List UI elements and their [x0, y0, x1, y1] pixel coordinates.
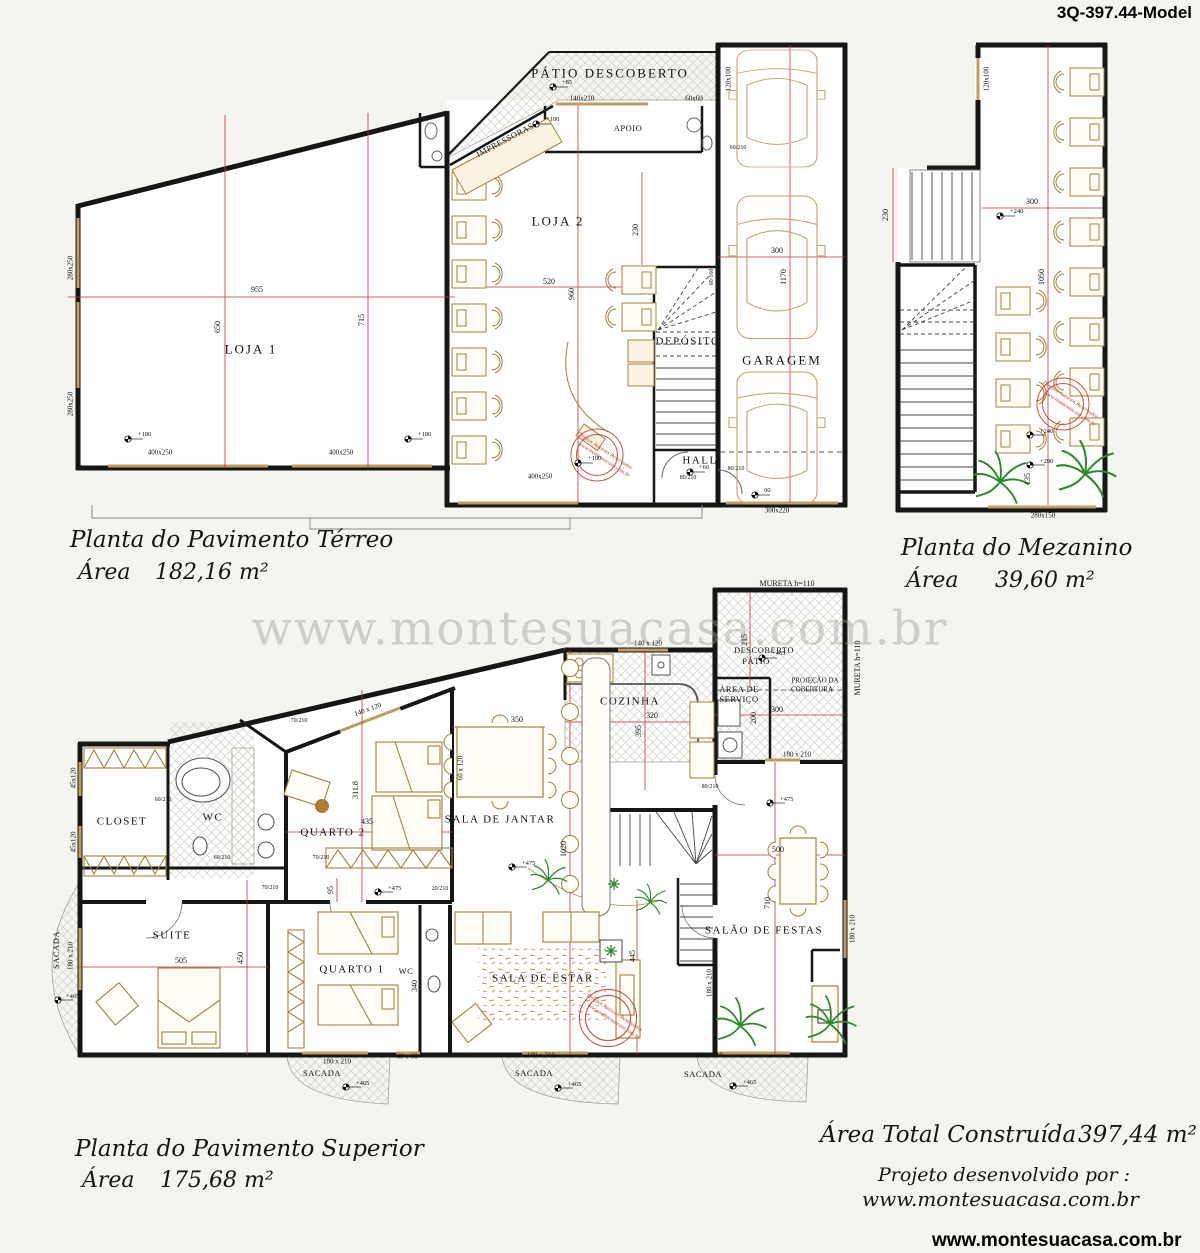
- door-180x210-patio: 180 x 210: [783, 752, 811, 759]
- dim-500: 500: [772, 846, 784, 854]
- level-00: 00: [764, 488, 771, 495]
- level-475-c: +475: [780, 797, 793, 804]
- win-280x250-b: 280x250: [68, 392, 75, 417]
- door-140x210: 140x210: [570, 96, 595, 103]
- room-label-salao: SALÃO DE FESTAS: [705, 926, 823, 937]
- room-label-cozinha: COZINHA: [600, 697, 660, 708]
- caption-credits-1: Projeto desenvolvido por :: [878, 1164, 1130, 1186]
- caption-mez-area-value: 39,60 m²: [995, 568, 1095, 593]
- caption-total-value: 397,44 m²: [1078, 1122, 1197, 1148]
- level-465-suite: +465: [66, 994, 79, 1001]
- room-label-servico-2: SERVIÇO: [719, 695, 758, 704]
- footer-url: www.montesuacasa.com.br: [932, 1231, 1182, 1250]
- caption-sup-area-label: Área: [82, 1168, 135, 1193]
- label-projecao-2: COBERTURA: [791, 687, 833, 694]
- caption-terreo-area-label: Área: [78, 560, 131, 585]
- room-label-wc2: WC: [399, 967, 414, 976]
- win-400x250-b: 400x250: [329, 450, 354, 457]
- caption-mez-area-label: Área: [906, 568, 959, 593]
- level-180a: +180: [138, 432, 151, 439]
- door-60-210-wc: 60/210: [214, 855, 231, 861]
- room-label-sacada-2: SACADA: [515, 1069, 553, 1078]
- dim-300-mez: 300: [1026, 198, 1038, 206]
- door-80-210-salao: 80/210: [702, 784, 719, 790]
- dim-230-mez: 230: [882, 209, 890, 221]
- dim-395: 395: [635, 725, 643, 737]
- dim-445: 445: [629, 950, 637, 962]
- dim-311-8: 311.8: [352, 781, 360, 799]
- level-60: +60: [699, 465, 709, 472]
- door-60-160: 60/160: [709, 269, 715, 286]
- win-180x210-salao-r: 180 x 210: [850, 915, 857, 943]
- door-180x210-suite: 180 x 210: [68, 942, 75, 970]
- door-180x210-b2: 180 x 210: [527, 1053, 555, 1060]
- room-label-jantar: SALA DE JANTAR: [445, 815, 556, 826]
- room-label-deposito: DEPÓSITO: [656, 337, 721, 348]
- win-120x100-terreo: 120x100: [726, 67, 733, 92]
- dim-300-garagem: 300: [771, 247, 783, 255]
- room-label-patio-descoberto: PÁTIO DESCOBERTO: [531, 67, 689, 80]
- dim-520: 520: [543, 278, 555, 286]
- win-280x250-a: 280x250: [68, 256, 75, 281]
- win-60x120: 60 x 120: [458, 756, 465, 781]
- dim-1050: 1050: [1038, 269, 1046, 285]
- level-475-b: +475: [522, 861, 535, 868]
- floorplan-sheet: 3Q-397.44-Model www.montesuacasa.com.br …: [0, 0, 1200, 1253]
- door-80-210-garagem: 80/210: [728, 466, 745, 472]
- dim-435: 435: [361, 818, 373, 826]
- room-label-suite: SUITE: [153, 931, 192, 942]
- dim-340: 340: [411, 980, 419, 992]
- door-70-210-b: 70/210: [313, 855, 330, 861]
- room-label-quarto1: QUARTO 1: [319, 965, 384, 976]
- room-label-servico-1: ÁREA DE: [719, 685, 759, 694]
- dim-650: 650: [214, 321, 222, 333]
- dim-135: 135: [1024, 473, 1032, 485]
- dim-320: 320: [646, 712, 658, 720]
- door-180x210-b1: 180 x 210: [323, 1059, 351, 1066]
- door-80-210-hall: 80/210: [680, 475, 697, 481]
- level-475-a: +475: [388, 886, 401, 893]
- dim-955: 955: [251, 286, 263, 294]
- dim-960: 960: [568, 288, 576, 300]
- caption-terreo-title: Planta do Pavimento Térreo: [70, 527, 393, 553]
- label-projecao-1: PROJEÇÃO DA: [791, 678, 838, 685]
- door-180x210-b3: 180 x 210: [695, 1053, 723, 1060]
- dim-505: 505: [175, 957, 187, 965]
- dim-1170: 1170: [780, 269, 788, 285]
- caption-mez-title: Planta do Mezanino: [901, 535, 1132, 561]
- door-60-210-apoio: 60/210: [730, 145, 747, 151]
- caption-sup-area-value: 175,68 m²: [160, 1168, 274, 1193]
- win-45x120-a: 45x120: [71, 768, 78, 789]
- win-400x250-c: 400x250: [528, 474, 553, 481]
- level-240b: +240: [1040, 429, 1053, 436]
- room-label-sacada-left: SACADA: [52, 931, 61, 969]
- dim-715: 715: [358, 314, 366, 326]
- sheet-title: 3Q-397.44-Model: [1057, 4, 1192, 21]
- level-240a: +240: [1010, 209, 1023, 216]
- win-140x120-cozinha: 140 x 120: [634, 641, 662, 648]
- caption-sup-title: Planta do Pavimento Superior: [75, 1136, 424, 1162]
- room-label-loja1: LOJA 1: [225, 343, 278, 356]
- win-400x250-a: 400x250: [148, 450, 173, 457]
- door-20-210: 20/210: [432, 886, 449, 892]
- win-120x100-mez: 120x100: [984, 67, 991, 92]
- dim-300-sup: 300: [771, 706, 783, 714]
- door-300x220: 300x220: [765, 508, 790, 515]
- win-280x150: 280x150: [1031, 513, 1056, 520]
- dim-710: 710: [764, 897, 772, 909]
- dim-350: 350: [511, 716, 523, 724]
- room-label-wc-suite: WC: [203, 813, 224, 824]
- room-label-estar: SALA DE ESTAR: [492, 974, 594, 985]
- level-465-patio: +465: [772, 651, 785, 658]
- label-mureta-right: MURETA h=110: [854, 641, 862, 696]
- level-180b: +180: [418, 432, 431, 439]
- dim-200: 200: [750, 712, 758, 724]
- room-label-closet: CLOSET: [97, 817, 148, 828]
- level-465-b3: +465: [743, 1080, 756, 1087]
- room-label-quarto2: QUARTO 2: [300, 828, 365, 839]
- room-label-sacada-1: SACADA: [303, 1069, 341, 1078]
- room-label-garagem: GARAGEM: [742, 354, 822, 367]
- caption-credits-2: www.montesuacasa.com.br: [862, 1187, 1139, 1211]
- win-45x120-b: 45x120: [71, 832, 78, 853]
- room-label-patio-sup-2: PÁTIO: [742, 657, 770, 666]
- watermark: www.montesuacasa.com.br: [252, 602, 948, 657]
- door-60-210-closet: 60/210: [155, 797, 172, 803]
- room-label-apoio: APOIO: [614, 124, 642, 133]
- dim-450: 450: [237, 952, 245, 964]
- dim-1020: 1020: [560, 841, 568, 857]
- level-100a: +100: [546, 117, 559, 124]
- room-label-sacada-3: SACADA: [684, 1070, 722, 1079]
- level-465-b1: +465: [356, 1081, 369, 1088]
- label-mureta-top: MURETA h=110: [760, 580, 815, 588]
- caption-total-label: Área Total Construída: [820, 1122, 1076, 1148]
- level-465-b2: +465: [568, 1082, 581, 1089]
- room-label-loja2: LOJA 2: [532, 215, 585, 228]
- caption-terreo-area-value: 182,16 m²: [155, 560, 269, 585]
- win-60x60: 60x60: [685, 96, 703, 103]
- win-60x60-sup: 60 x 60: [397, 1054, 418, 1061]
- level-85: +85: [562, 80, 572, 87]
- dim-230-terreo: 230: [632, 224, 640, 236]
- win-180x210-salao-l: 180 x 210: [707, 969, 714, 997]
- door-70-210-c: 70/210: [262, 885, 279, 891]
- dim-95: 95: [327, 886, 335, 894]
- level-290: +290: [1040, 459, 1053, 466]
- door-70-210-a: 70/210: [291, 718, 308, 724]
- dim-215: 215: [741, 634, 749, 646]
